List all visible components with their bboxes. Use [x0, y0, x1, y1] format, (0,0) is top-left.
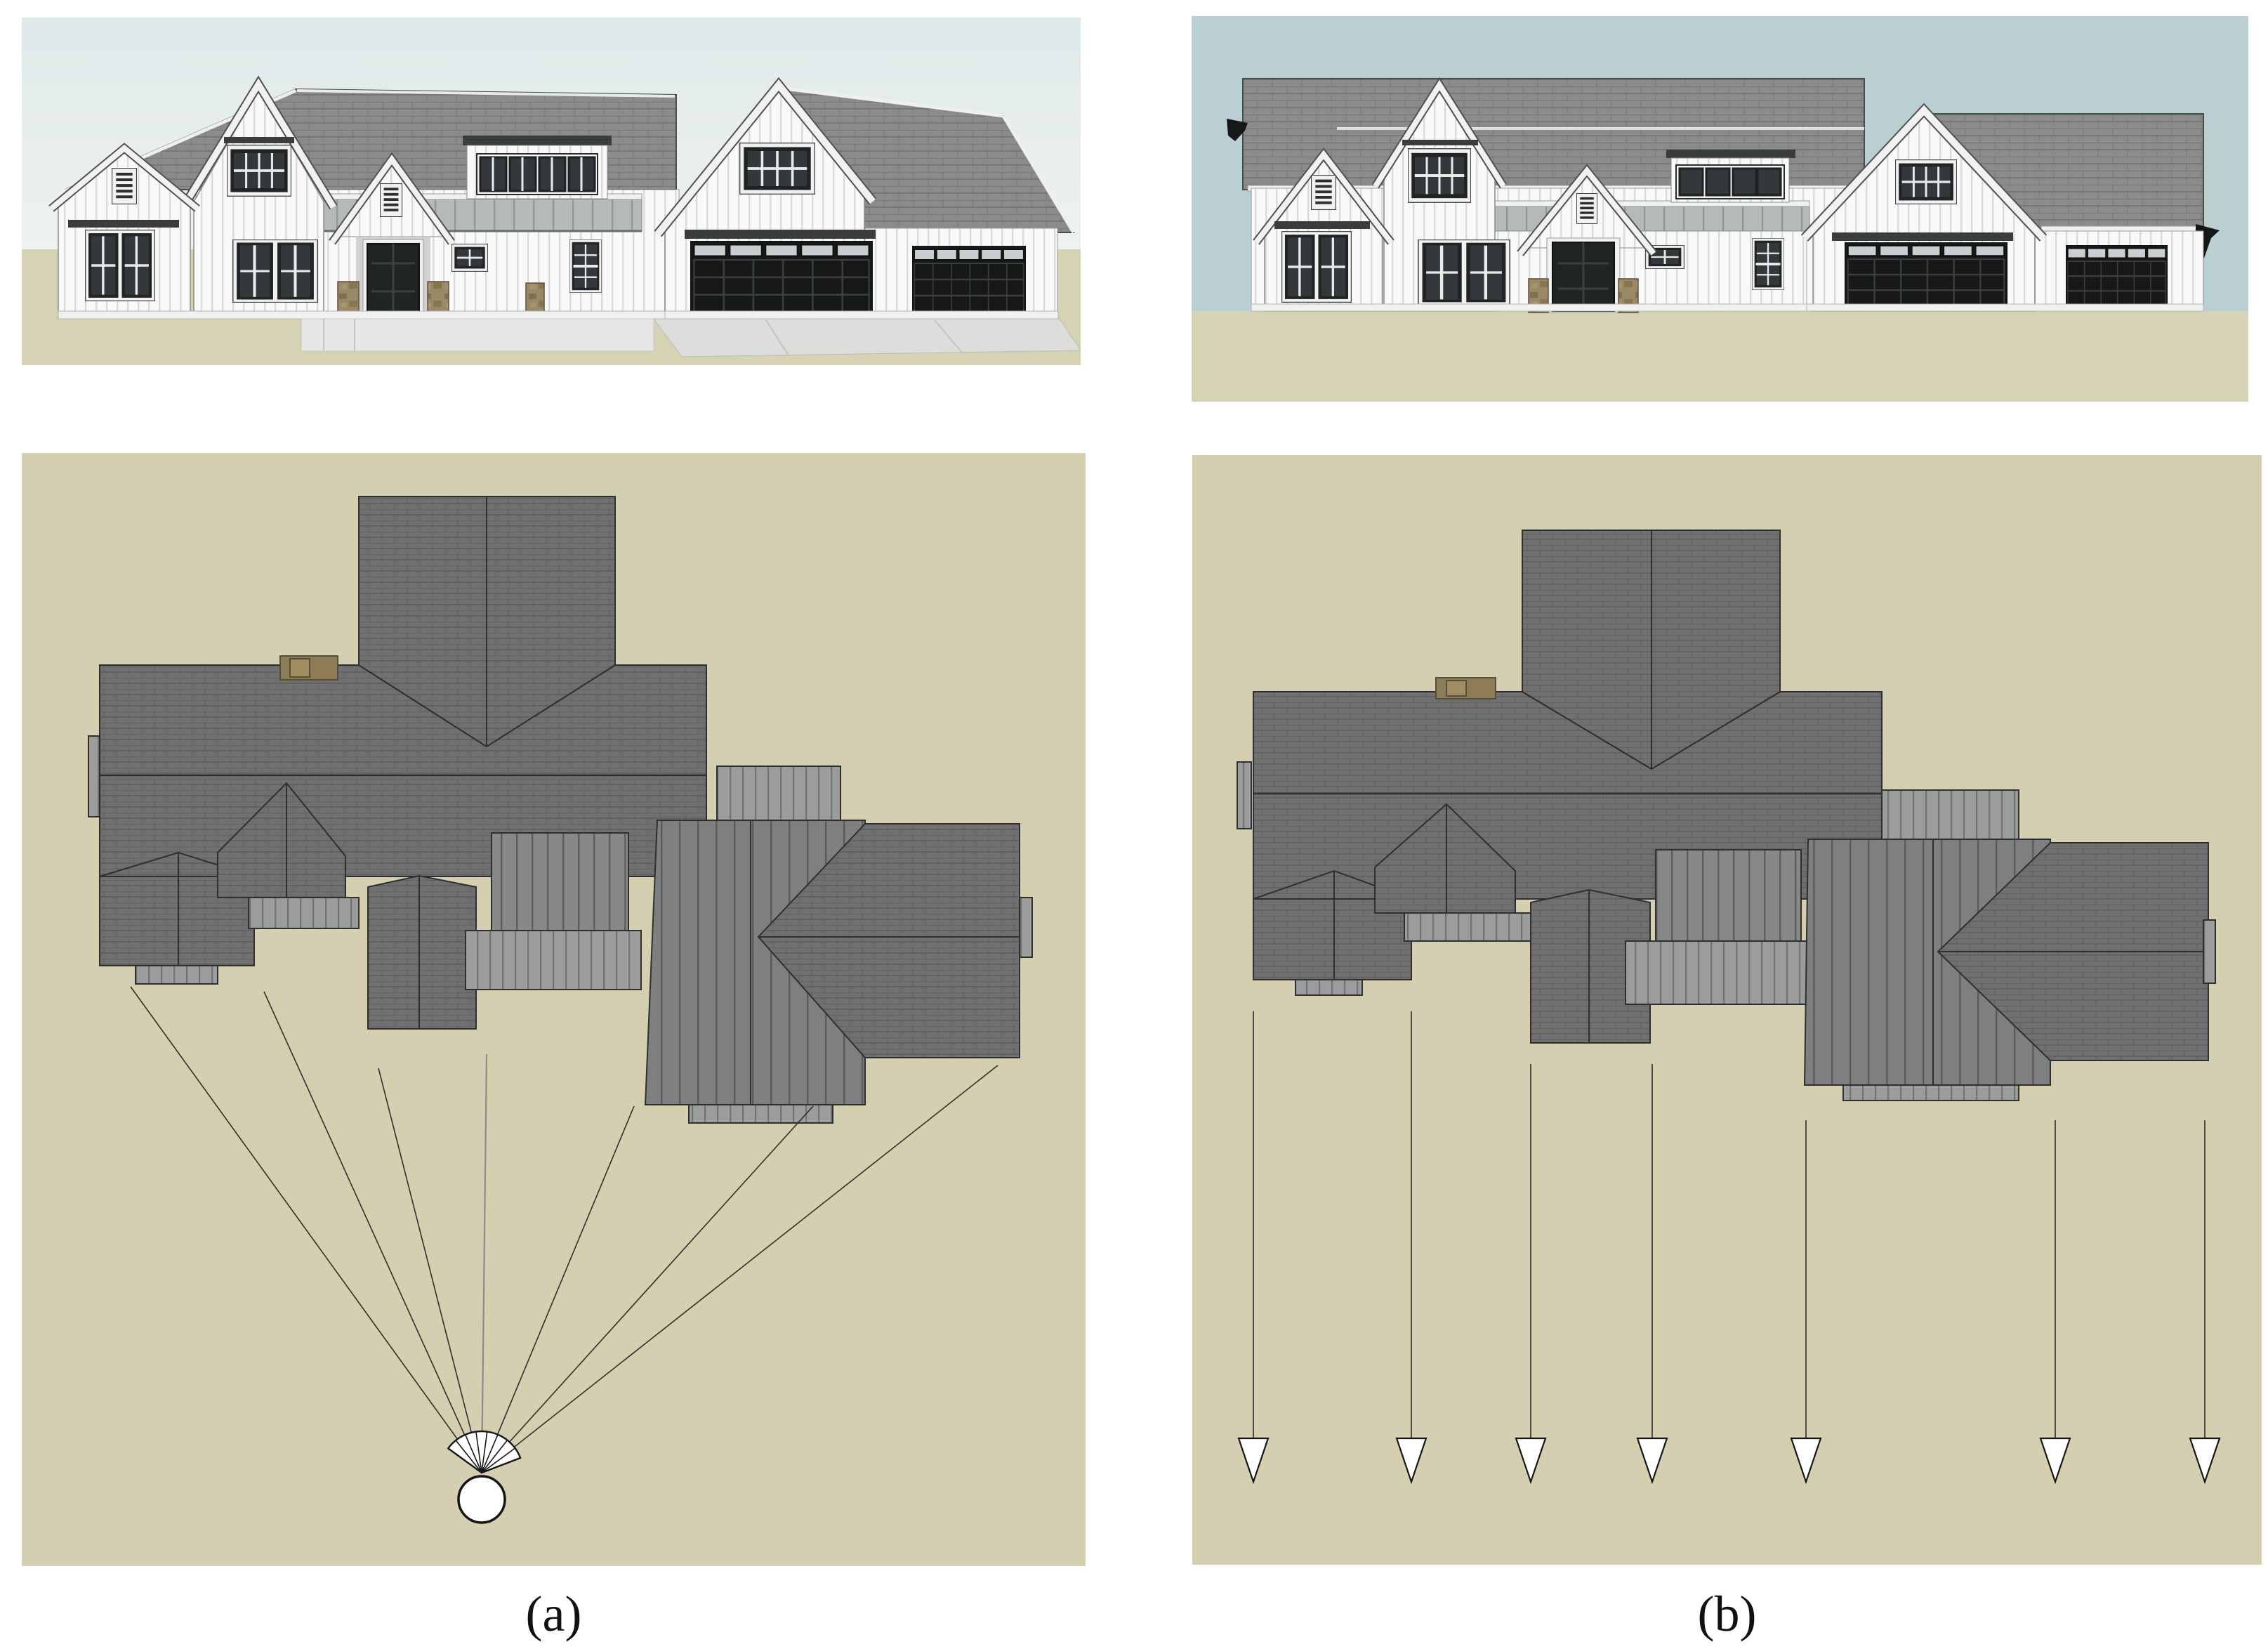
- garage-door-small: [2066, 245, 2168, 310]
- camera-position-icon: [459, 1476, 505, 1523]
- vent-strip: [1237, 762, 1251, 829]
- clerestory-dormer: [463, 136, 612, 199]
- window: [739, 143, 815, 195]
- garage-door-large: [690, 241, 873, 317]
- vent-strip: [1843, 1085, 2019, 1101]
- panel-roof-plan-orthographic: [1192, 455, 2262, 1565]
- vent-strip: [1020, 898, 1032, 957]
- panel-roof-plan-perspective: [22, 453, 1086, 1566]
- vent-strip: [2203, 920, 2215, 983]
- subfigure-label-a: (a): [22, 1579, 1086, 1649]
- window: [1408, 148, 1471, 203]
- vent-strip: [1295, 980, 1362, 995]
- clerestory-roof-plan: [1656, 850, 1801, 941]
- porch-metal-roof: [1479, 201, 1809, 231]
- garage-awning: [1832, 232, 2013, 241]
- vent-strip: [249, 898, 359, 928]
- window: [569, 239, 602, 293]
- chimney: [1436, 678, 1496, 699]
- window: [1752, 238, 1784, 290]
- window: [1895, 159, 1957, 204]
- panel-house-elevation-orthographic: [1192, 16, 2248, 402]
- garage-door-large: [1845, 242, 2007, 310]
- clerestory-dormer: [1666, 150, 1795, 202]
- figure-page: (a) (b): [0, 0, 2268, 1649]
- walkway: [301, 319, 654, 351]
- window: [85, 230, 155, 301]
- ground: [1192, 311, 2248, 402]
- panel-house-elevation-perspective: [22, 18, 1081, 365]
- clerestory-roof-plan: [492, 833, 628, 931]
- driveway: [654, 319, 1081, 357]
- window-awning: [1274, 221, 1370, 229]
- window: [1418, 239, 1510, 306]
- window: [1281, 231, 1352, 303]
- subfigure-label-b: (b): [1192, 1579, 2262, 1649]
- louver-vent-icon: [1576, 193, 1597, 224]
- breezeway-roof-plan: [717, 766, 840, 820]
- garage-awning: [685, 230, 876, 239]
- vent-strip: [136, 966, 218, 984]
- porch-metal-roof-plan: [1626, 941, 1822, 1004]
- garage-door-small: [912, 246, 1026, 316]
- chimney: [280, 656, 338, 680]
- window: [232, 239, 318, 303]
- louver-vent-icon: [112, 168, 137, 204]
- window-awning: [68, 220, 179, 228]
- vent-strip: [88, 736, 100, 817]
- porch-metal-roof-plan: [466, 931, 641, 990]
- breezeway-roof-plan: [1882, 790, 2019, 839]
- louver-vent-icon: [1311, 175, 1336, 210]
- louver-vent-icon: [380, 183, 402, 217]
- porch-gable-plan: [368, 876, 476, 1029]
- vent-strip: [1404, 913, 1531, 941]
- window: [451, 244, 488, 272]
- window: [227, 145, 291, 197]
